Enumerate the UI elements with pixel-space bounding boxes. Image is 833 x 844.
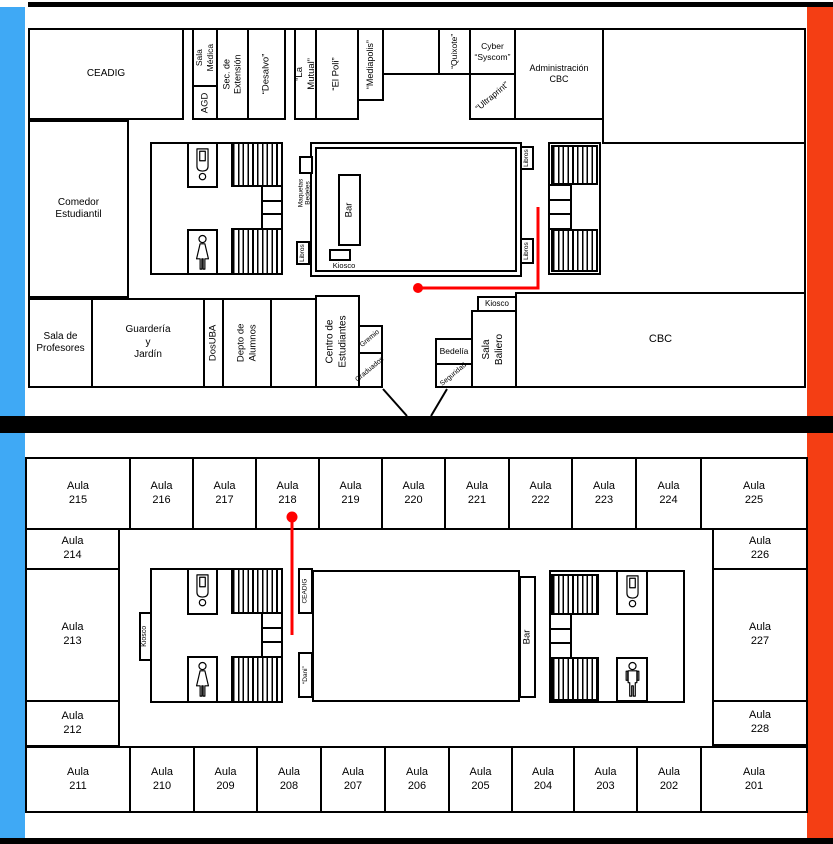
stairs-upper-left-bottom bbox=[231, 228, 283, 275]
room-label: Sala de Profesores bbox=[36, 331, 84, 356]
room-label: “Ultraprint” bbox=[474, 80, 512, 114]
room-label: Aula 205 bbox=[469, 766, 491, 794]
stair-landing-lower-right bbox=[549, 613, 572, 659]
floor-divider-band bbox=[0, 416, 833, 433]
room-comedor-estudiantil: Comedor Estudiantil bbox=[28, 120, 129, 298]
libros-left: Libros bbox=[296, 241, 310, 265]
room-label: Depto de Alumnos bbox=[235, 324, 259, 363]
room-ceadig-lower: CEADIG bbox=[298, 568, 313, 614]
room-aula-205: Aula 205 bbox=[448, 746, 513, 813]
room-label: CEADIG bbox=[87, 68, 125, 81]
room-quixote: “Quixote” bbox=[438, 28, 471, 75]
upper-right-wall bbox=[804, 142, 806, 294]
room-label: Kiosco bbox=[141, 626, 150, 647]
room-label: “La Mutual” bbox=[294, 58, 318, 90]
room-label: Aula 208 bbox=[278, 766, 300, 794]
room-label: “El Poli” bbox=[331, 57, 343, 90]
room-label: Aula 219 bbox=[339, 480, 361, 508]
room-aula-209: Aula 209 bbox=[193, 746, 258, 813]
room-label: Centro de Estudiantes bbox=[325, 315, 350, 367]
room-desalvo: “Desalvo” bbox=[247, 28, 286, 120]
restroom-women-upper bbox=[187, 229, 218, 275]
route-marker-upper bbox=[413, 283, 423, 293]
room-label: Aula 221 bbox=[466, 480, 488, 508]
room-label: Sala Médica bbox=[194, 44, 215, 71]
room-aula-224: Aula 224 bbox=[635, 457, 702, 530]
room-label: Bar bbox=[344, 203, 356, 218]
room-aula-226: Aula 226 bbox=[712, 528, 808, 570]
room-label: Aula 206 bbox=[406, 766, 428, 794]
room-mediapolis: “Mediapolis” bbox=[357, 28, 384, 101]
room-label: “Quixote” bbox=[449, 34, 460, 69]
stairs-lower-right-bottom bbox=[551, 657, 599, 701]
room-label: CBC bbox=[649, 333, 672, 347]
room-label: Aula 207 bbox=[342, 766, 364, 794]
floor-connector-arrow bbox=[383, 389, 447, 416]
room-aula-222: Aula 222 bbox=[508, 457, 573, 530]
room-label: Kiosco bbox=[333, 262, 356, 270]
room-aula-225: Aula 225 bbox=[700, 457, 808, 530]
room-label: Cyber “Syscom” bbox=[475, 41, 511, 62]
room-label: Graduados bbox=[354, 356, 386, 385]
room-depto-de-alumnos: Depto de Alumnos bbox=[222, 298, 272, 388]
room-aula-220: Aula 220 bbox=[381, 457, 446, 530]
room-label: Aula 203 bbox=[594, 766, 616, 794]
room-label: Aula 216 bbox=[150, 480, 172, 508]
toilet-icon bbox=[193, 573, 212, 610]
floor-plan-canvas: CEADIG Sala Médica AGD Sec. de Extensión… bbox=[0, 0, 833, 844]
room-aula-217: Aula 217 bbox=[192, 457, 257, 530]
room-label: Aula 223 bbox=[593, 480, 615, 508]
toilet-icon bbox=[623, 574, 642, 611]
room-aula-221: Aula 221 bbox=[444, 457, 510, 530]
room-kiosco-baliero: Kiosco bbox=[477, 296, 517, 312]
stairs-lower-left-top bbox=[231, 568, 283, 614]
room-label: Administración CBC bbox=[529, 63, 588, 86]
room-label: Aula 217 bbox=[213, 480, 235, 508]
room-label: Seguridad bbox=[439, 362, 469, 389]
room-label: Sala Baliero bbox=[481, 333, 506, 364]
room-aula-216: Aula 216 bbox=[129, 457, 194, 530]
room-label: Aula 227 bbox=[749, 621, 771, 649]
maquetas-box bbox=[299, 156, 313, 174]
room-label: Aula 225 bbox=[743, 480, 765, 508]
room-cyber-syscom: Cyber “Syscom” bbox=[469, 28, 516, 75]
room-label: Aula 214 bbox=[61, 535, 83, 563]
stairs-lower-right-top bbox=[551, 574, 599, 615]
top-border-line bbox=[28, 2, 833, 7]
room-sala-de-profesores: Sala de Profesores bbox=[28, 298, 93, 388]
room-label: Aula 204 bbox=[532, 766, 554, 794]
room-unlabeled-right bbox=[602, 28, 806, 144]
room-administracion-cbc: Administración CBC bbox=[514, 28, 604, 120]
room-aula-206: Aula 206 bbox=[384, 746, 450, 813]
stair-landing-upper-left bbox=[261, 185, 283, 230]
room-seguridad: Seguridad bbox=[435, 363, 473, 388]
room-sala-medica: Sala Médica bbox=[192, 28, 218, 87]
restroom-toilet-upper bbox=[187, 142, 218, 188]
toilet-icon bbox=[193, 147, 212, 184]
man-icon bbox=[623, 661, 642, 698]
restroom-men-lower bbox=[616, 657, 648, 702]
room-label: Libros bbox=[523, 149, 531, 167]
room-kiosco-lower: Kiosco bbox=[139, 612, 152, 661]
room-label: Aula 201 bbox=[743, 766, 765, 794]
room-label: AGD bbox=[199, 92, 211, 113]
room-sala-baliero: Sala Baliero bbox=[471, 310, 517, 388]
room-aula-201: Aula 201 bbox=[700, 746, 808, 813]
room-cbc: CBC bbox=[515, 292, 806, 388]
room-ceadig-upper: CEADIG bbox=[28, 28, 184, 120]
room-label: CEADIG bbox=[301, 579, 309, 604]
room-label: “Dani” bbox=[301, 666, 309, 684]
room-label: Aula 210 bbox=[151, 766, 173, 794]
room-label: “Desalvo” bbox=[261, 54, 273, 95]
room-label: Aula 213 bbox=[61, 621, 83, 649]
room-aula-208: Aula 208 bbox=[256, 746, 322, 813]
room-label: Aula 226 bbox=[749, 535, 771, 563]
room-label: DosUBA bbox=[208, 325, 220, 361]
room-dosuba: DosUBA bbox=[203, 298, 224, 388]
room-label: Sec. de Extensión bbox=[221, 54, 244, 94]
room-label: Aula 215 bbox=[67, 480, 89, 508]
room-el-poli: “El Poli” bbox=[315, 28, 359, 120]
room-la-mutual: “La Mutual” bbox=[294, 28, 317, 120]
room-ultraprint: “Ultraprint” bbox=[469, 73, 516, 120]
room-label: Aula 202 bbox=[658, 766, 680, 794]
room-label: Kiosco bbox=[485, 299, 509, 309]
room-label: Bedelía bbox=[440, 346, 469, 357]
room-aula-219: Aula 219 bbox=[318, 457, 383, 530]
room-aula-207: Aula 207 bbox=[320, 746, 386, 813]
restroom-toilet-lower-left bbox=[187, 568, 218, 615]
room-aula-227: Aula 227 bbox=[712, 568, 808, 702]
room-label: Gremio bbox=[359, 329, 382, 350]
room-label: Aula 218 bbox=[276, 480, 298, 508]
stair-landing-lower-left bbox=[261, 612, 283, 658]
room-aula-213: Aula 213 bbox=[25, 568, 120, 702]
central-hall-lower bbox=[312, 570, 520, 702]
room-label: Aula 228 bbox=[749, 709, 771, 737]
stairs-upper-right-top bbox=[551, 145, 598, 185]
restroom-toilet-lower-right bbox=[616, 570, 648, 615]
room-aula-212: Aula 212 bbox=[25, 700, 120, 747]
room-label: Aula 212 bbox=[61, 710, 83, 738]
room-label: Aula 224 bbox=[657, 480, 679, 508]
room-unlabeled-bottom bbox=[270, 298, 317, 388]
room-centro-de-estudiantes: Centro de Estudiantes bbox=[315, 295, 360, 388]
stair-landing-upper-right bbox=[548, 184, 572, 230]
room-label: Aula 209 bbox=[214, 766, 236, 794]
room-label: Guardería y Jardín bbox=[125, 324, 170, 362]
room-sec-de-extension: Sec. de Extensión bbox=[216, 28, 249, 120]
kiosco-patio-label: Kiosco bbox=[322, 261, 366, 271]
room-unlabeled-top bbox=[382, 28, 440, 75]
room-graduados: Graduados bbox=[358, 352, 383, 388]
room-label: “Mediapolis” bbox=[365, 40, 376, 89]
stairs-upper-left-top bbox=[231, 142, 283, 187]
stairs-upper-right-bottom bbox=[551, 229, 598, 272]
room-aula-210: Aula 210 bbox=[129, 746, 195, 813]
room-guarderia-y-jardin: Guardería y Jardín bbox=[91, 298, 205, 388]
room-aula-203: Aula 203 bbox=[573, 746, 638, 813]
room-aula-204: Aula 204 bbox=[511, 746, 575, 813]
bar-upper: Bar bbox=[338, 174, 361, 246]
woman-icon bbox=[193, 661, 212, 698]
room-aula-228: Aula 228 bbox=[712, 700, 808, 746]
room-label: Aula 220 bbox=[402, 480, 424, 508]
maquetas-label: Maquetas Bedeles bbox=[298, 179, 313, 208]
bar-lower: Bar bbox=[519, 576, 536, 698]
room-aula-202: Aula 202 bbox=[636, 746, 702, 813]
stairs-lower-left-bottom bbox=[231, 656, 283, 703]
room-agd: AGD bbox=[192, 85, 218, 120]
libros-right-top: Libros bbox=[520, 146, 534, 170]
room-gremio: Gremio bbox=[358, 325, 383, 354]
room-aula-214: Aula 214 bbox=[25, 528, 120, 570]
woman-icon bbox=[193, 234, 212, 271]
room-label: Bar bbox=[522, 630, 534, 645]
room-aula-218: Aula 218 bbox=[255, 457, 320, 530]
room-label: Aula 211 bbox=[67, 766, 89, 794]
room-aula-223: Aula 223 bbox=[571, 457, 637, 530]
room-label: Libros bbox=[523, 242, 531, 260]
room-bedelia: Bedelía bbox=[435, 338, 473, 365]
bottom-border-line bbox=[0, 838, 833, 844]
room-label: Aula 222 bbox=[529, 480, 551, 508]
kiosco-patio-box bbox=[329, 249, 351, 261]
room-aula-215: Aula 215 bbox=[25, 457, 131, 530]
room-label: Libros bbox=[299, 244, 307, 262]
room-aula-211: Aula 211 bbox=[25, 746, 131, 813]
libros-right-bottom: Libros bbox=[520, 238, 534, 264]
room-dani: “Dani” bbox=[298, 652, 313, 698]
restroom-women-lower bbox=[187, 656, 218, 703]
room-label: Comedor Estudiantil bbox=[55, 197, 101, 222]
